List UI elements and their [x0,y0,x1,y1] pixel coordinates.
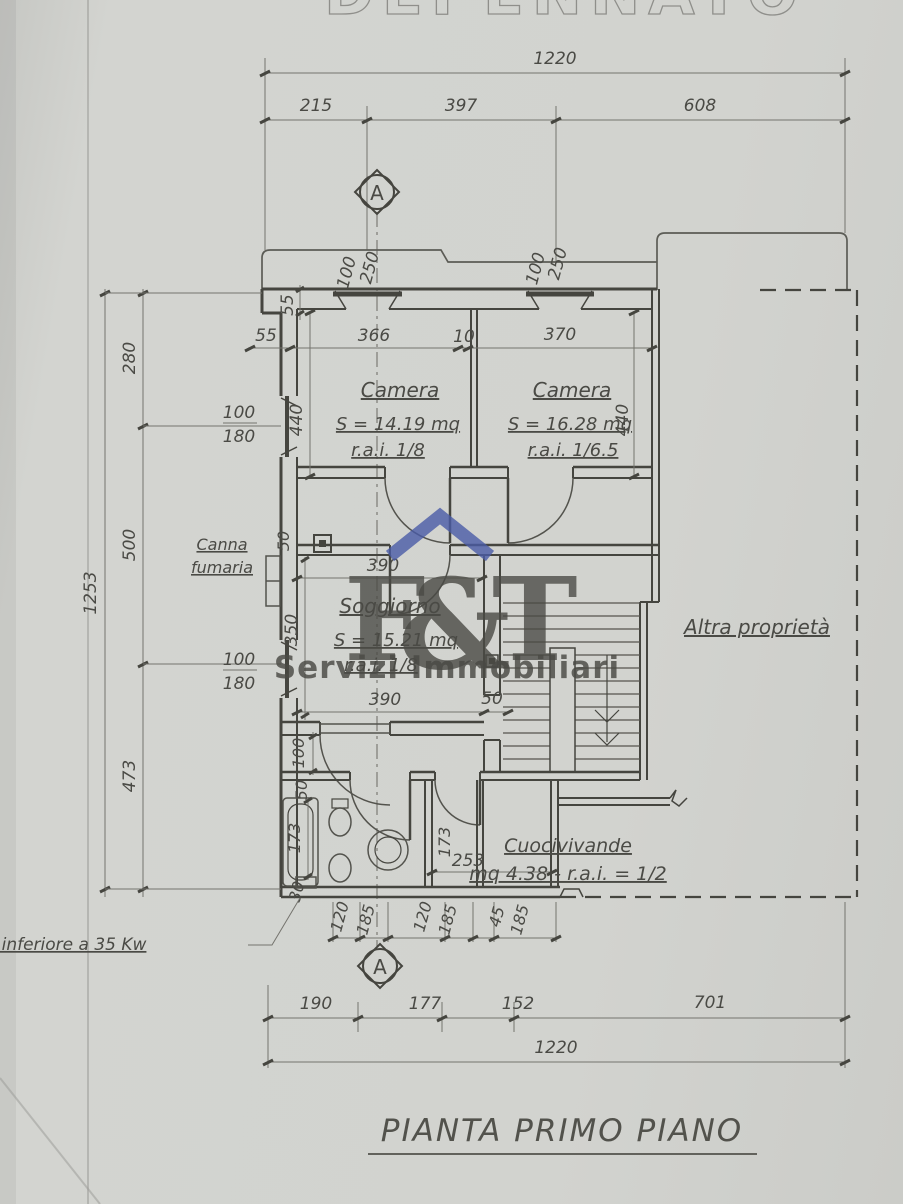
room-name-cuocivivande: Cuocivivande [504,835,632,857]
toilet [329,808,351,836]
dim: 185 [435,902,461,936]
room-area-cuocivivande: mq 4.38 - r.a.i. = 1/2 [469,863,667,885]
label-altra-proprieta: Altra proprietà [682,615,830,639]
section-letter: A [373,955,387,979]
paper-edge-shadow [0,0,16,1204]
room-rai-camera2: r.a.i. 1/6.5 [528,440,619,461]
door-arc-camera2 [508,478,573,543]
dim: 100 [333,254,361,291]
room-name-camera1: Camera [361,378,440,402]
label-canna-fumaria: fumaria [191,558,253,577]
dim: 177 [409,994,442,1014]
drawing-title: PIANTA PRIMO PIANO [381,1113,743,1149]
drawing-title-block: PIANTA PRIMO PIANO [368,1113,757,1154]
dim: 173 [285,823,304,854]
watermark-subtitle: Servizi Immobiliari [274,650,620,686]
dim: 250 [356,249,384,286]
dim: 390 [369,690,401,710]
dim: 180 [223,427,255,447]
label-canna-fumaria: Canna [196,535,247,554]
room-name-camera2: Camera [533,378,612,402]
section-marker-bottom: A [358,944,402,988]
dim: 370 [544,325,576,345]
dim-top-seg: 215 [300,96,332,116]
door-leaf-soggiorno-bottom [320,724,390,733]
dim: 100 [289,738,308,769]
dim: 280 [120,342,140,374]
dim-top-total: 1220 [533,49,576,69]
door-arc-wc [435,780,480,825]
dim: 1220 [534,1038,577,1058]
dim: 185 [507,902,533,936]
dim: 473 [120,760,140,792]
dim: 190 [300,994,332,1014]
toilet-tank [332,799,348,808]
dim: 152 [502,994,534,1014]
dim: 45 [485,904,509,929]
scanned-floor-plan-sheet: DEPENNATO 1220 215 397 608 A [0,0,903,1204]
dim: 185 [353,902,379,936]
dim: 55 [255,326,277,346]
dim: 350 [282,614,302,646]
dim: 50 [292,780,311,800]
top-dimension-chains: 1220 215 397 608 [260,49,850,262]
dim: 180 [223,674,255,694]
dim: 100 [223,403,255,423]
dim: 250 [544,245,572,282]
clipped-crossed-out-title: DEPENNATO [324,0,806,29]
dim: 120 [327,899,353,933]
dim: 440 [287,404,307,436]
door-arc-corridor [320,735,390,805]
section-letter: A [370,181,384,205]
room-area-camera1: S = 14.19 mq [336,414,460,435]
dim: 50 [274,531,293,551]
dim: 10 [453,327,475,347]
dim: 55 [278,294,298,316]
section-marker-top: A [355,170,399,214]
dim: 120 [410,899,436,933]
caldaia-leader-line [248,898,300,945]
canna-fumaria-flue-symbol [314,535,331,552]
dim: 30 [285,879,309,904]
dim-top-seg: 608 [684,96,717,116]
label-caldaia: Caldaia a gas inferiore a 35 Kw [0,935,147,955]
floor-plan-drawing: DEPENNATO 1220 215 397 608 A [0,0,903,1204]
room-rai-camera1: r.a.i. 1/8 [351,440,425,461]
house-roof-icon [390,516,490,556]
dim-top-seg: 397 [445,96,478,116]
dim: 366 [358,326,391,346]
dim: 701 [694,993,726,1013]
radiator [266,556,280,606]
dim: 100 [223,650,255,670]
bidet [329,854,351,882]
dim: 500 [120,529,140,561]
room-area-camera2: S = 16.28 mq [508,414,632,435]
dim: 1253 [81,571,101,614]
